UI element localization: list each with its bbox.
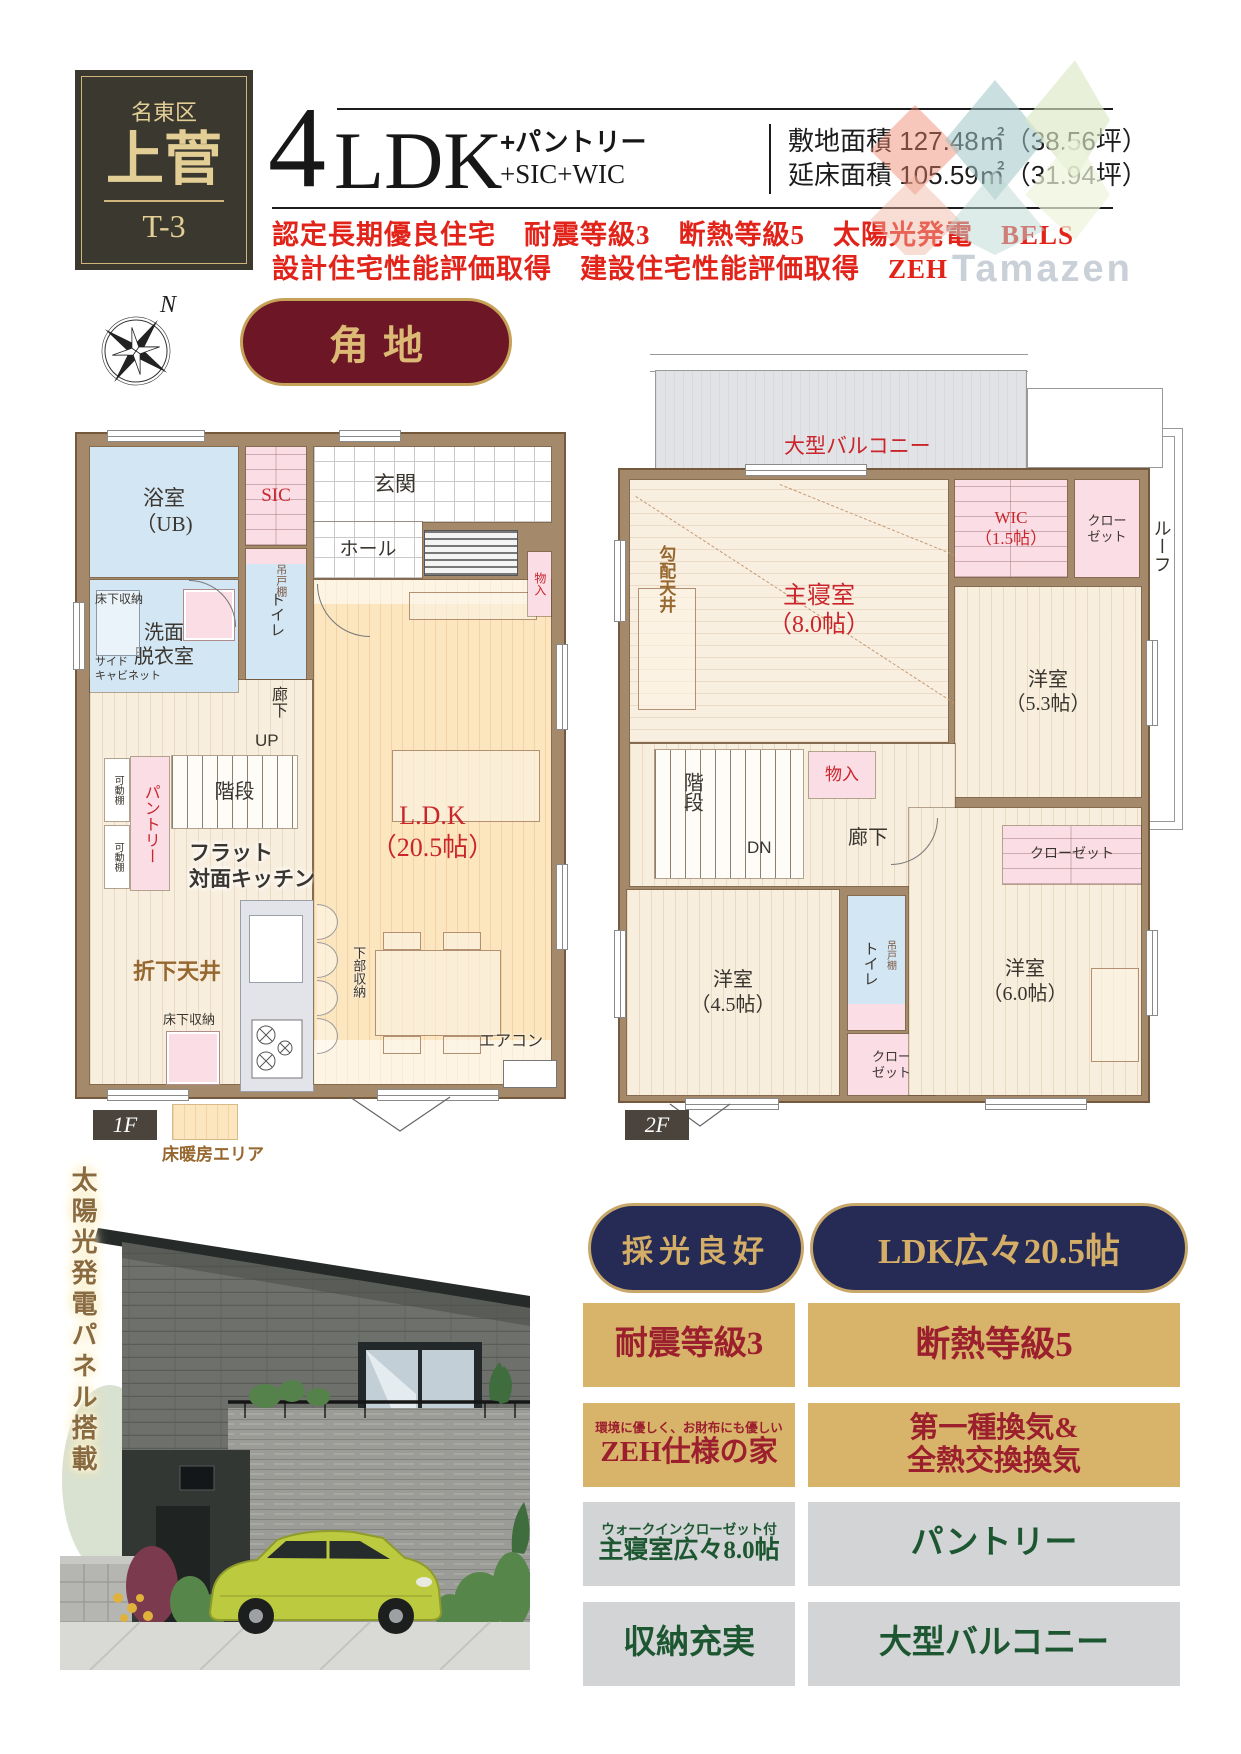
balcony-label: 大型バルコニー — [784, 433, 931, 459]
district-label: 名東区 — [131, 95, 197, 127]
corridor-2f-label: 廊下 — [848, 826, 888, 850]
hanging-shelf-1f-label: 吊戸棚 — [273, 564, 287, 597]
corridor-1f-label: 廊下 — [267, 686, 287, 718]
flat-kitchen-label: フラット 対面キッチン — [189, 840, 315, 893]
plan-plus1: +パントリー — [500, 126, 646, 158]
ldk-count: 4 — [268, 90, 326, 206]
down-label: DN — [747, 838, 772, 859]
floor-plan-1f: 浴室 （UB) SIC 玄関 ホール 洗面 脱衣室 床下収納 サイド キャビネッ… — [75, 432, 566, 1099]
room-hall-1f: ホール — [314, 522, 422, 578]
unit-number: T-3 — [142, 208, 185, 245]
exterior-photo: 太陽光発電パネル搭載 — [60, 1150, 530, 1670]
flyer-page: 名東区 上菅 T-3 4 LDK +パントリー +SIC+WIC 敷地面積 12… — [0, 0, 1241, 1754]
window — [1146, 930, 1158, 1016]
room-pantry-1f: パントリー — [131, 757, 169, 890]
floor-storage-b-box — [167, 1032, 219, 1084]
ldk-suffix: LDK — [334, 120, 503, 202]
dining-chair — [443, 1036, 481, 1054]
room-yoshitsu-60: クローゼット 洋室 （6.0帖） — [909, 808, 1141, 1095]
window — [556, 644, 568, 730]
corner-lot-badge: 角地 — [240, 298, 512, 386]
stairs-1f: 階段 — [172, 756, 297, 828]
kitchen-counter — [240, 900, 314, 1092]
floor-tag-1f: 1F — [93, 1110, 157, 1140]
dining-chair — [383, 1036, 421, 1054]
window — [614, 540, 626, 622]
movable-shelf-b-label: 可動棚 — [111, 842, 123, 872]
house-illustration — [60, 1150, 530, 1670]
room-yoshitsu-53: 洋室 （5.3帖） — [955, 587, 1141, 797]
movable-shelf-a-label: 可動棚 — [111, 775, 123, 805]
feature-pantry: パントリー — [808, 1502, 1180, 1586]
feature-storage: 収納充実 — [583, 1602, 795, 1686]
legend-swatch — [172, 1104, 238, 1140]
area-name: 上菅 — [106, 127, 222, 194]
plan-plus2: +SIC+WIC — [500, 158, 625, 190]
roof-label: ルーフ — [1150, 519, 1173, 573]
feature-master-bedroom: ウォークインクローゼット付 主寝室広々8.0帖 — [583, 1502, 795, 1586]
aircon-label: エアコン — [479, 1032, 543, 1052]
feature-balcony: 大型バルコニー — [808, 1602, 1180, 1686]
feature-zeh-sub: 環境に優しく、お財布にも優しい — [595, 1421, 783, 1435]
dining-chair — [383, 932, 421, 950]
feature-zeh: 環境に優しく、お財布にも優しい ZEH仕様の家 — [583, 1403, 795, 1487]
movable-shelf-a: 可動棚 — [105, 759, 129, 821]
feature-insulation: 断熱等級5 — [808, 1303, 1180, 1387]
aircon-unit — [503, 1060, 557, 1088]
compass-north-label: N — [160, 292, 176, 319]
room-ldk-1f: L.D.K （20.5帖） — [314, 580, 551, 1084]
entry-step-hatch — [424, 530, 518, 576]
dining-chair — [443, 932, 481, 950]
feature-master-sub: ウォークインクローゼット付 — [601, 1522, 777, 1538]
master-bedroom-label: 主寝室 （8.0帖） — [768, 582, 870, 641]
watermark-logo-icon — [840, 25, 1110, 255]
watermark-text: Tamazen — [952, 248, 1133, 291]
floor-storage-b-label: 床下収納 — [163, 1012, 215, 1028]
window — [339, 430, 401, 442]
toilet-shelf-strip — [246, 549, 306, 564]
room-yoshitsu-45: 洋室 （4.5帖） — [627, 890, 839, 1095]
window — [614, 930, 626, 1018]
sloped-ceiling-label2: 勾配天井 — [655, 545, 676, 613]
movable-shelf-b: 可動棚 — [105, 826, 129, 888]
room-master-bedroom: 主寝室 （8.0帖） — [630, 480, 948, 742]
hanging-shelf-2f-label: 吊戸棚 — [883, 940, 896, 970]
stove-icon — [251, 1019, 303, 1079]
feature-zeh-main: ZEH仕様の家 — [600, 1436, 777, 1469]
unit-badge-divider — [104, 200, 224, 202]
floor-tag-2f: 2F — [625, 1110, 689, 1140]
closet-top-right: クロー ゼット — [1075, 480, 1139, 577]
roof-outline-top — [1027, 388, 1163, 468]
dining-table-outline — [375, 950, 501, 1036]
window — [745, 464, 867, 476]
stairs-2f-label: 階段 — [679, 772, 703, 812]
pantry-label: パントリー — [140, 784, 160, 864]
feature-seismic: 耐震等級3 — [583, 1303, 795, 1387]
feature-ventilation: 第一種換気& 全熱交換換気 — [808, 1403, 1180, 1487]
unit-badge: 名東区 上菅 T-3 — [75, 70, 253, 270]
window — [985, 1098, 1087, 1110]
storage-monoire-1f: 物入 — [528, 552, 551, 616]
side-cabinet-label: サイド キャビネット — [95, 656, 161, 684]
monoire-1f-label: 物入 — [532, 572, 547, 596]
window — [556, 864, 568, 950]
window — [107, 1089, 189, 1101]
balcony-2f: 大型バルコニー — [655, 370, 1027, 477]
room-bath-1f: 浴室 （UB) — [90, 447, 238, 577]
under-counter-storage-label: 下部収納 — [350, 946, 366, 998]
toilet-1f-label: トイレ — [267, 592, 285, 637]
stairs-2f: 階段 DN — [655, 750, 803, 878]
dropped-ceiling-label: 折下天井 — [133, 958, 221, 986]
kitchen-sink — [249, 915, 303, 983]
room-toilet-2f: トイレ — [848, 896, 905, 1030]
header-vertical-divider — [769, 124, 771, 194]
room-sic-1f: SIC — [246, 447, 306, 545]
toilet-2f-counter — [848, 1004, 905, 1030]
closet-room60: クローゼット — [1003, 826, 1141, 884]
floor-storage-a-label: 床下収納 — [95, 592, 143, 607]
window — [1146, 640, 1158, 726]
feature-master-main: 主寝室広々8.0帖 — [598, 1537, 779, 1566]
room-genkan-1f: 玄関 — [314, 447, 551, 522]
window — [107, 430, 205, 442]
toilet-2f-label: トイレ — [860, 941, 878, 986]
feature-pill-lighting: 採光良好 — [588, 1203, 804, 1293]
floor-plan-2f: ルーフ 大型バルコニー 主寝室 （8.0帖） 勾配天井 WIC （1.5帖） ク… — [595, 340, 1195, 1115]
room-wic-2f: WIC （1.5帖） — [955, 480, 1067, 577]
island-counter-outline — [409, 592, 537, 620]
photo-vertical-caption: 太陽光発電パネル搭載 — [64, 1166, 101, 1646]
porch-mark-1f — [348, 1095, 452, 1135]
storage-monoire-2f: 物入 — [809, 752, 875, 798]
yoshitsu-60-label: 洋室 （6.0帖） — [983, 957, 1068, 1006]
window — [73, 602, 85, 670]
desk-outline-60 — [1091, 968, 1139, 1062]
up-label: UP — [255, 730, 279, 751]
ldk-label: L.D.K （20.5帖） — [371, 800, 495, 863]
feature-pill-ldk: LDK広々20.5帖 — [810, 1203, 1188, 1293]
